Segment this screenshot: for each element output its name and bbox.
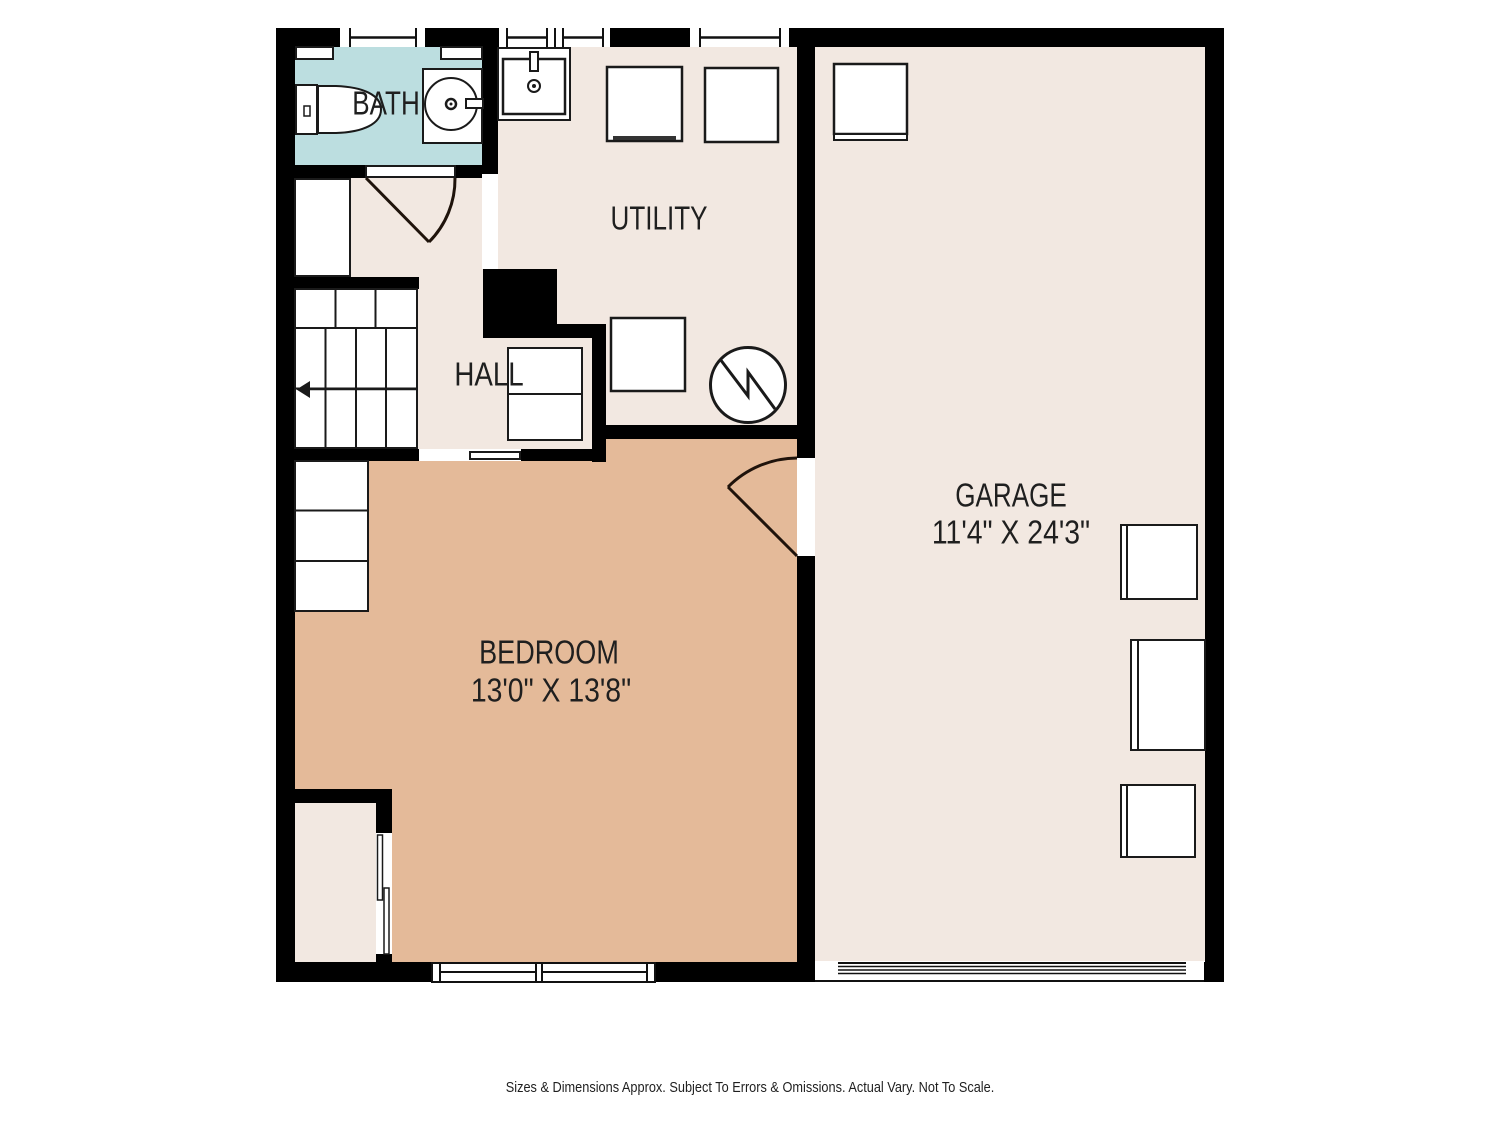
svg-text:BEDROOM: BEDROOM	[479, 635, 619, 671]
svg-text:11'4" X 24'3": 11'4" X 24'3"	[932, 514, 1090, 552]
svg-text:BATH: BATH	[352, 86, 420, 123]
svg-text:GARAGE: GARAGE	[955, 478, 1066, 515]
svg-text:HALL: HALL	[454, 356, 523, 393]
svg-text:UTILITY: UTILITY	[611, 201, 708, 238]
svg-text:13'0" X 13'8": 13'0" X 13'8"	[471, 672, 631, 710]
svg-text:Sizes & Dimensions Approx. Sub: Sizes & Dimensions Approx. Subject To Er…	[506, 1079, 994, 1095]
